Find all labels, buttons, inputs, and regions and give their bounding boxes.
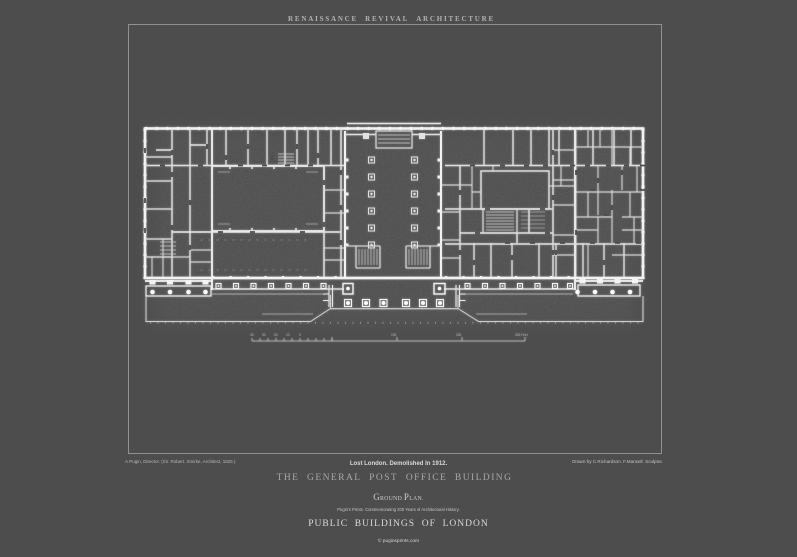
svg-text:40: 40 [250, 333, 254, 337]
svg-text:100: 100 [391, 333, 397, 337]
svg-text:0: 0 [299, 333, 301, 337]
svg-text:30: 30 [262, 333, 266, 337]
svg-text:200: 200 [456, 333, 462, 337]
svg-text:10: 10 [286, 333, 290, 337]
svg-text:300 Feet: 300 Feet [515, 333, 528, 337]
svg-text:20: 20 [274, 333, 278, 337]
